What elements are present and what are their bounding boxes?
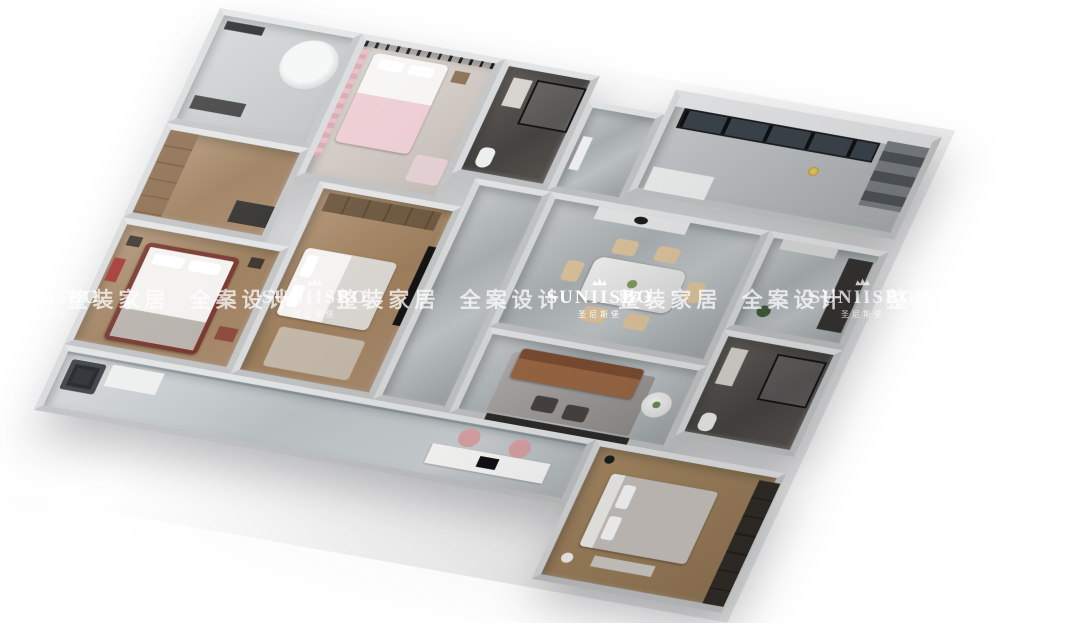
gray-duvet <box>109 308 206 351</box>
pillow <box>151 253 186 269</box>
duvet <box>321 255 398 330</box>
pillow <box>298 255 319 278</box>
floorplan-render <box>0 8 942 613</box>
nightstand <box>450 71 471 85</box>
red-wall-art <box>104 257 126 282</box>
bath-shelf <box>224 21 266 36</box>
dining-chair <box>621 313 651 332</box>
console <box>779 239 839 259</box>
toilet <box>695 412 719 433</box>
plant <box>754 304 773 318</box>
dining-chair <box>579 305 609 324</box>
vanity <box>715 347 749 386</box>
entry-door <box>568 136 593 171</box>
canvas: { "image": {"width": 1080, "height": 608… <box>0 0 1080 608</box>
dining-chair <box>559 260 585 283</box>
shower-enclosure <box>757 354 828 409</box>
bath-vanity <box>189 95 246 117</box>
gold-wok <box>806 166 821 177</box>
sofa-back <box>519 348 645 380</box>
floor-flowers <box>559 552 575 564</box>
pillow <box>187 260 222 276</box>
dining-chair <box>652 246 682 265</box>
bedroom-rug <box>262 326 366 381</box>
pink-rug <box>404 154 448 186</box>
master-bed <box>579 473 719 564</box>
toilet <box>473 146 497 168</box>
pink-chair <box>455 427 484 449</box>
nightstand <box>126 235 144 247</box>
kitchen-cabinet <box>643 166 714 200</box>
tall-cabinet <box>816 258 873 333</box>
pendant-lamp <box>603 455 616 465</box>
dresser <box>227 200 275 228</box>
washing-machine <box>59 359 107 395</box>
dining-chair <box>681 281 707 304</box>
crown-icon <box>39 278 55 286</box>
wardrobe <box>133 130 200 217</box>
tagline-watermark: 整装家居 全案设计 <box>886 284 1080 314</box>
dining-chair <box>611 238 641 257</box>
red-ottoman <box>214 326 239 343</box>
nightstand <box>247 257 265 269</box>
bed-bench <box>590 555 656 577</box>
corner-bathtub <box>270 36 347 93</box>
white-bed <box>275 247 397 331</box>
pillow <box>285 284 306 307</box>
